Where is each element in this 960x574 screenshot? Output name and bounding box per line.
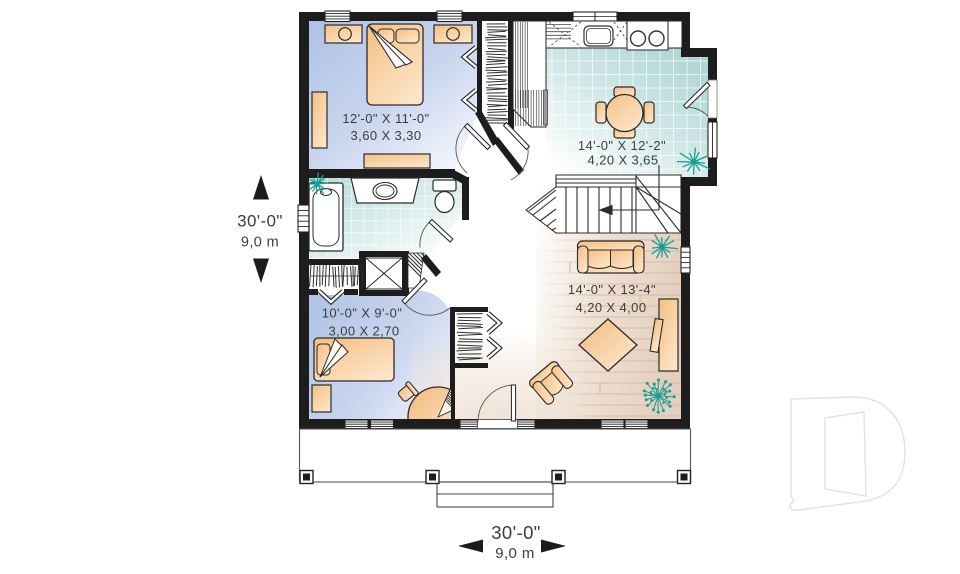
svg-text:30'-0": 30'-0" <box>491 522 541 543</box>
svg-text:14'-0" X 12'-2": 14'-0" X 12'-2" <box>578 138 666 153</box>
svg-text:30'-0": 30'-0" <box>237 212 283 231</box>
svg-text:4,20 X 3,65: 4,20 X 3,65 <box>588 153 659 168</box>
svg-text:10'-0" X 9'-0": 10'-0" X 9'-0" <box>322 306 403 321</box>
svg-text:3,60 X 3,30: 3,60 X 3,30 <box>351 128 422 143</box>
svg-text:3,00 X 2,70: 3,00 X 2,70 <box>329 324 400 339</box>
svg-text:4,20 X 4,00: 4,20 X 4,00 <box>576 300 647 315</box>
svg-text:9,0 m: 9,0 m <box>495 545 535 562</box>
svg-text:12'-0" X 11'-0": 12'-0" X 11'-0" <box>342 111 429 126</box>
svg-text:14'-0" X 13'-4": 14'-0" X 13'-4" <box>568 282 656 297</box>
svg-text:9,0 m: 9,0 m <box>241 235 279 251</box>
